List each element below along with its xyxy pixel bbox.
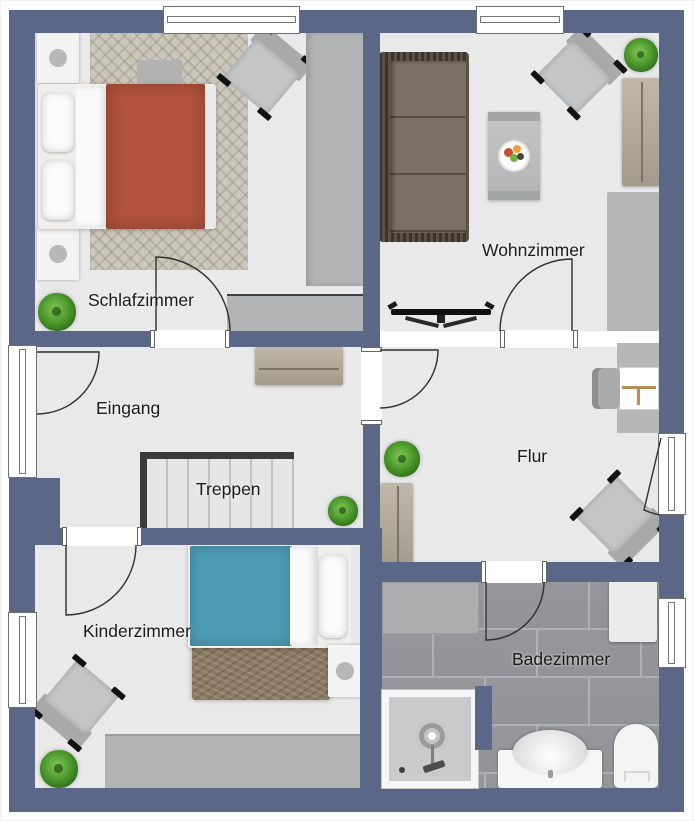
door-wohnzimmer [500, 330, 578, 348]
window-wohnzimmer-top [476, 6, 564, 34]
tv [391, 300, 491, 330]
livingroom-rug [607, 192, 659, 331]
blanket-fold [290, 547, 318, 645]
duvet [106, 84, 205, 229]
plant [40, 750, 78, 788]
footboard [207, 86, 216, 227]
desk-frame [637, 386, 640, 405]
desk-chair [592, 368, 620, 409]
kids-wardrobe [105, 734, 360, 788]
double-bed [38, 84, 216, 229]
label-schlafzimmer: Schlafzimmer [88, 290, 194, 311]
pillow [319, 554, 347, 638]
outer-wall-right [659, 10, 684, 790]
fruit [513, 145, 521, 153]
bath-mat [609, 580, 657, 642]
outer-wall-top [9, 10, 684, 33]
plant [328, 496, 358, 526]
table-edge [488, 112, 540, 121]
floor-tile [382, 630, 432, 676]
headboard [351, 547, 360, 645]
kids-nightstand [328, 645, 362, 697]
label-eingang: Eingang [96, 398, 160, 419]
blanket-fold [76, 86, 108, 227]
door-schlafzimmer [150, 330, 230, 348]
plant [38, 293, 76, 331]
sink [498, 730, 602, 788]
label-badezimmer: Badezimmer [512, 649, 610, 670]
plant [384, 441, 420, 477]
faucet [548, 770, 553, 778]
wall-stub-entrance [9, 478, 60, 531]
nightstand-top [37, 33, 79, 83]
kids-duvet [190, 546, 292, 646]
label-treppen: Treppen [196, 479, 261, 500]
label-wohnzimmer: Wohnzimmer [482, 240, 585, 261]
wall-schlafzimmer-wohnzimmer [363, 10, 380, 347]
nightstand-bottom [37, 228, 79, 280]
entrance-door-window [8, 345, 37, 478]
shower-dot [399, 767, 405, 773]
sofa-cushions [390, 61, 466, 233]
window-schlafzimmer-top [163, 6, 300, 34]
pillow [42, 92, 74, 152]
bedroom-wardrobe [306, 33, 363, 286]
label-flur: Flur [517, 446, 547, 467]
bedroom-dresser [227, 294, 364, 331]
tv-stand [437, 315, 445, 323]
floor-plan: Schlafzimmer Wohnzimmer Eingang Treppen … [0, 0, 694, 821]
plant [624, 38, 658, 72]
entry-sideboard [255, 347, 343, 385]
toilet-hinge [624, 771, 650, 782]
table-edge [488, 191, 540, 200]
sofa [379, 52, 469, 242]
sink-bowl [513, 730, 587, 774]
livingroom-sideboard [622, 78, 660, 186]
outer-wall-bottom [9, 788, 684, 812]
shower [382, 690, 478, 788]
shower-fixture [422, 760, 445, 773]
door-badezimmer [481, 561, 547, 583]
fruit [517, 153, 524, 160]
balcony-door-flur [658, 433, 686, 515]
toilet [614, 724, 658, 788]
floor-tile [486, 582, 588, 628]
desk [619, 367, 659, 410]
label-kinderzimmer: Kinderzimmer [83, 621, 191, 642]
floor-tile [590, 678, 659, 724]
tv-foot [443, 316, 477, 328]
door-kinderzimmer [62, 527, 142, 546]
wall-stub-shower [475, 686, 492, 750]
coffee-table [488, 112, 540, 200]
floor-tile [486, 678, 588, 724]
tv-foot [405, 316, 439, 328]
pillow [42, 160, 74, 220]
single-bed [188, 544, 362, 648]
bed-bench [137, 60, 182, 87]
hall-sideboard [380, 483, 413, 567]
door-eingang-flur [361, 347, 382, 425]
window-kinderzimmer-left [8, 612, 37, 708]
window-badezimmer-right [658, 598, 686, 668]
bath-cabinet [382, 582, 479, 634]
